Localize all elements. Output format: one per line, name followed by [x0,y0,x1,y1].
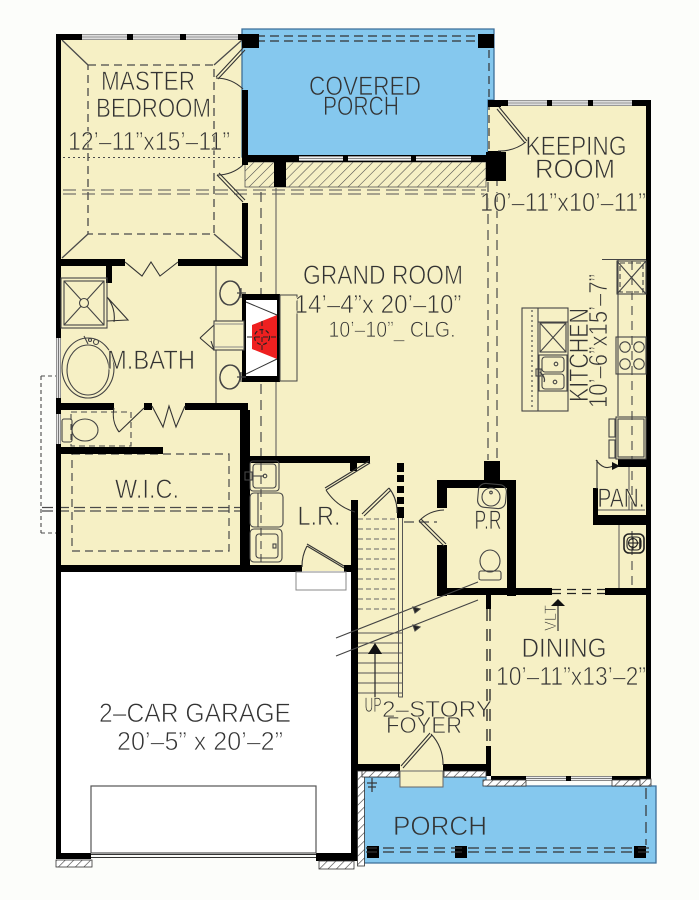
svg-text:14’–4”x 20’–10”: 14’–4”x 20’–10” [295,289,462,319]
svg-text:VLT: VLT [541,605,560,631]
svg-text:DINING: DINING [522,633,607,663]
svg-text:BEDROOM: BEDROOM [96,93,211,123]
svg-text:MASTER: MASTER [101,66,195,96]
svg-text:10’–10”_ CLG.: 10’–10”_ CLG. [329,317,456,342]
svg-text:UP: UP [365,694,382,717]
svg-text:ROOM: ROOM [535,154,615,184]
svg-text:2–CAR GARAGE: 2–CAR GARAGE [99,698,291,728]
svg-text:L.R.: L.R. [298,501,341,531]
svg-text:M.BATH: M.BATH [107,345,195,375]
svg-text:12’–11”x15’–11”: 12’–11”x15’–11” [68,126,230,156]
svg-text:P.R: P.R [475,505,502,535]
svg-text:FOYER: FOYER [386,712,462,738]
svg-text:20’–5” x 20’–2”: 20’–5” x 20’–2” [117,726,283,756]
svg-text:10’–6”x15’–7”: 10’–6”x15’–7” [583,274,613,408]
svg-text:PORCH: PORCH [393,811,487,841]
svg-text:10’–11”x13’–2”: 10’–11”x13’–2” [496,661,646,691]
svg-text:GRAND ROOM: GRAND ROOM [303,260,463,290]
svg-text:10’–11”x10’–11”: 10’–11”x10’–11” [480,187,646,217]
svg-text:PORCH: PORCH [323,91,399,121]
svg-text:PAN.: PAN. [598,483,645,513]
svg-text:W.I.C.: W.I.C. [115,474,179,504]
